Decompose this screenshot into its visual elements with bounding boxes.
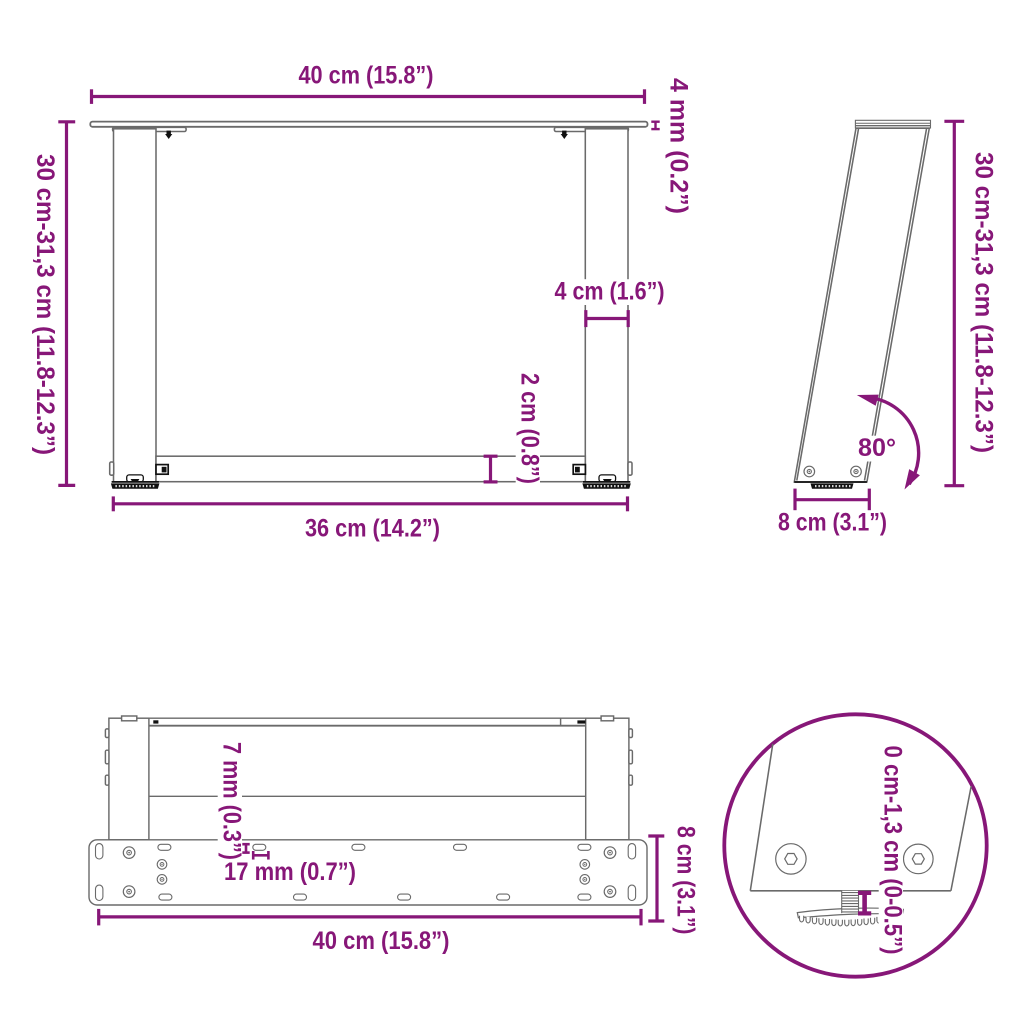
svg-text:2 cm (0.8”): 2 cm (0.8”)	[516, 373, 544, 484]
svg-text:4 mm (0.2”): 4 mm (0.2”)	[665, 78, 693, 214]
svg-text:80°: 80°	[858, 434, 896, 462]
svg-text:7 mm (0.3”): 7 mm (0.3”)	[218, 742, 246, 860]
svg-text:0 cm-1,3 cm (0-0.5”): 0 cm-1,3 cm (0-0.5”)	[879, 746, 907, 955]
svg-text:17 mm (0.7”): 17 mm (0.7”)	[224, 858, 356, 886]
svg-text:30 cm-31,3 cm (11.8-12.3”): 30 cm-31,3 cm (11.8-12.3”)	[31, 154, 59, 455]
svg-text:40 cm (15.8”): 40 cm (15.8”)	[313, 927, 450, 955]
svg-text:40 cm (15.8”): 40 cm (15.8”)	[299, 62, 434, 90]
svg-text:8 cm (3.1”): 8 cm (3.1”)	[672, 826, 700, 935]
svg-text:36 cm (14.2”): 36 cm (14.2”)	[305, 515, 440, 543]
svg-text:8 cm (3.1”): 8 cm (3.1”)	[778, 509, 887, 537]
svg-text:4 cm (1.6”): 4 cm (1.6”)	[555, 278, 665, 306]
svg-text:30 cm-31,3 cm (11.8-12.3”): 30 cm-31,3 cm (11.8-12.3”)	[970, 152, 998, 453]
